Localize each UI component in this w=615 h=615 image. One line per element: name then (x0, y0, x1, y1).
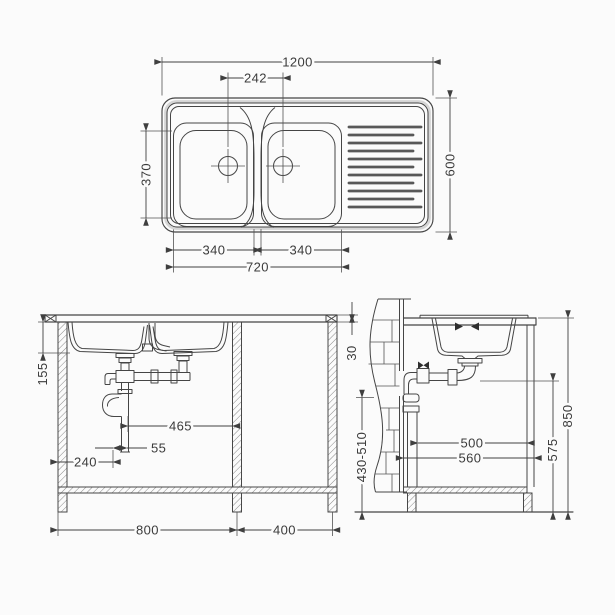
bowls-section (68, 322, 228, 354)
drain-assembly-left (116, 354, 134, 383)
cabinet-shelf (58, 487, 337, 493)
dim-label-overall-depth-side: 560 (459, 451, 482, 466)
dim-bowls-length: 720 (174, 260, 342, 275)
dim-label-bowl1-length: 340 (203, 243, 226, 258)
dim-label-cabinet1-width: 800 (136, 523, 159, 538)
dim-overall-depth-side: 560 (404, 451, 535, 466)
overflow-pipe (143, 323, 171, 351)
dim-label-outlet-height-range: 430-510 (354, 432, 369, 483)
drain-center-left-icon (211, 149, 245, 183)
dim-trap-offset: 55 (95, 441, 166, 456)
plan-view: 1200 242 370 600 340 340 720 (139, 55, 458, 275)
dim-label-bowl2-length: 340 (290, 243, 313, 258)
dim-pipe-height: 575 (545, 381, 560, 512)
sink-technical-drawing: 1200 242 370 600 340 340 720 (0, 0, 615, 615)
dim-overall-depth: 600 (443, 98, 458, 232)
dim-inner-depth: 500 (418, 436, 527, 451)
dim-label-worktop-thickness: 30 (344, 345, 359, 360)
dim-label-drain-spacing: 242 (244, 71, 267, 86)
drain-side-assembly (403, 359, 482, 488)
dim-worktop-thickness: 30 (344, 302, 359, 361)
pipe-nut (403, 406, 419, 412)
drainboard-ribs (349, 127, 421, 207)
siphon-trap (103, 383, 133, 453)
bowl-right (262, 123, 342, 227)
cabinet-shelf-side (404, 487, 528, 493)
dim-bowl-width: 370 (139, 131, 154, 218)
dim-bowl-depth: 155 (35, 322, 50, 385)
dim-label-overall-depth: 600 (443, 154, 458, 177)
bowl-left (174, 123, 254, 227)
cabinet-side (355, 325, 573, 512)
front-section-view: 155 465 55 240 800 400 (35, 315, 337, 538)
cabinet-panels (58, 322, 337, 512)
dim-overall-length: 1200 (162, 55, 433, 70)
side-section-view: 30 430-510 500 560 575 850 (337, 299, 575, 512)
wall-section (369, 299, 412, 492)
dim-label-bowls-length: 720 (246, 260, 269, 275)
dim-label-trap-offset: 55 (151, 441, 166, 456)
brick-hatch (369, 320, 400, 492)
dim-cabinet2-width: 400 (237, 523, 333, 538)
pipe-coupling (403, 394, 419, 402)
dim-label-inner-depth: 500 (461, 436, 484, 451)
dim-label-overall-length: 1200 (282, 55, 313, 70)
dim-label-bowl-depth: 155 (35, 363, 50, 386)
dim-bowl2-length: 340 (261, 243, 342, 258)
sink-outline (162, 98, 433, 232)
dim-worktop-height: 850 (560, 318, 575, 512)
dim-label-pipe-height: 575 (545, 439, 560, 462)
drain-assembly-right (174, 352, 192, 373)
dim-label-bowl-width: 370 (139, 163, 154, 186)
dim-label-trap-to-partition: 465 (169, 419, 192, 434)
dim-label-cabinet2-width: 400 (273, 523, 296, 538)
drain-center-right-icon (266, 149, 300, 183)
tap-hole-icon (455, 323, 479, 331)
dim-drain-spacing: 242 (228, 71, 283, 86)
technical-drawing-canvas: 1200 242 370 600 340 340 720 (0, 0, 615, 615)
dim-cabinet1-width: 800 (58, 523, 237, 538)
dim-outlet-height-range: 430-510 (354, 398, 369, 513)
dim-bowl1-length: 340 (174, 243, 255, 258)
valve-icon (417, 362, 429, 384)
dim-label-worktop-height: 850 (560, 405, 575, 428)
dim-trap-to-partition: 465 (128, 419, 233, 434)
plan-extension-lines (141, 57, 458, 273)
countertop (45, 315, 337, 322)
dim-label-trap-from-side: 240 (74, 455, 97, 470)
